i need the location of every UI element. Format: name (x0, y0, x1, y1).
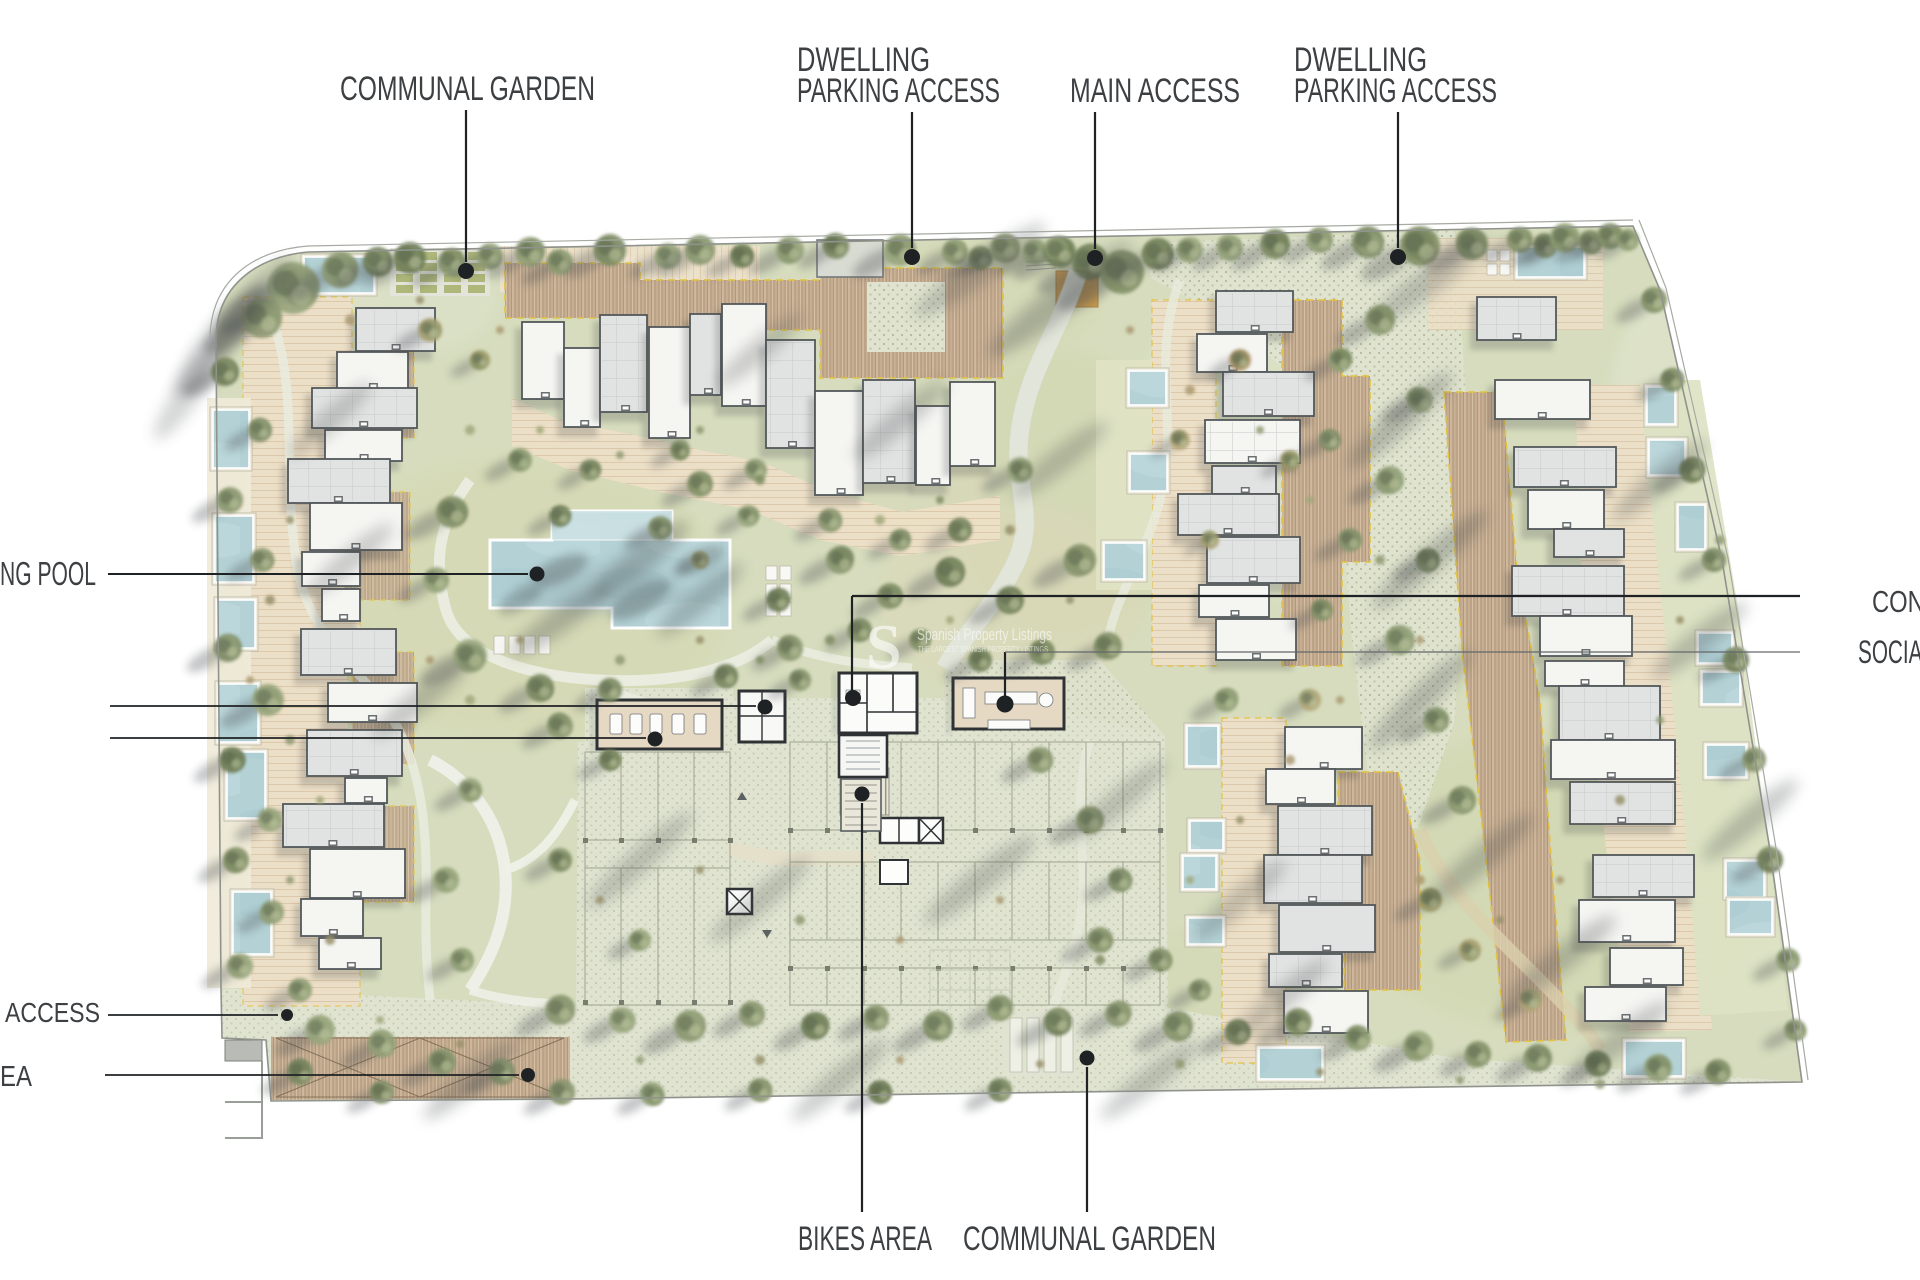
svg-text:COMMUNAL GARDEN: COMMUNAL GARDEN (963, 1220, 1216, 1258)
svg-text:BIKES AREA: BIKES AREA (798, 1220, 932, 1258)
svg-text:EA: EA (0, 1061, 33, 1093)
svg-text:Spanish Property Listings: Spanish Property Listings (917, 625, 1052, 644)
svg-text:PARKING ACCESS: PARKING ACCESS (797, 72, 1000, 110)
svg-text:THE LARGEST SPANISH PROPERTY L: THE LARGEST SPANISH PROPERTY LISTINGS (918, 645, 1048, 654)
svg-text:S: S (866, 611, 902, 682)
svg-text:ACCESS: ACCESS (5, 997, 100, 1028)
svg-text:COMMUNAL GARDEN: COMMUNAL GARDEN (340, 70, 595, 108)
svg-text:CONC: CONC (1872, 584, 1920, 619)
svg-text:MAIN ACCESS: MAIN ACCESS (1070, 72, 1240, 110)
svg-text:PARKING ACCESS: PARKING ACCESS (1294, 72, 1497, 110)
svg-text:SOCIAL: SOCIAL (1858, 634, 1920, 670)
svg-text:NG POOL: NG POOL (0, 555, 96, 592)
